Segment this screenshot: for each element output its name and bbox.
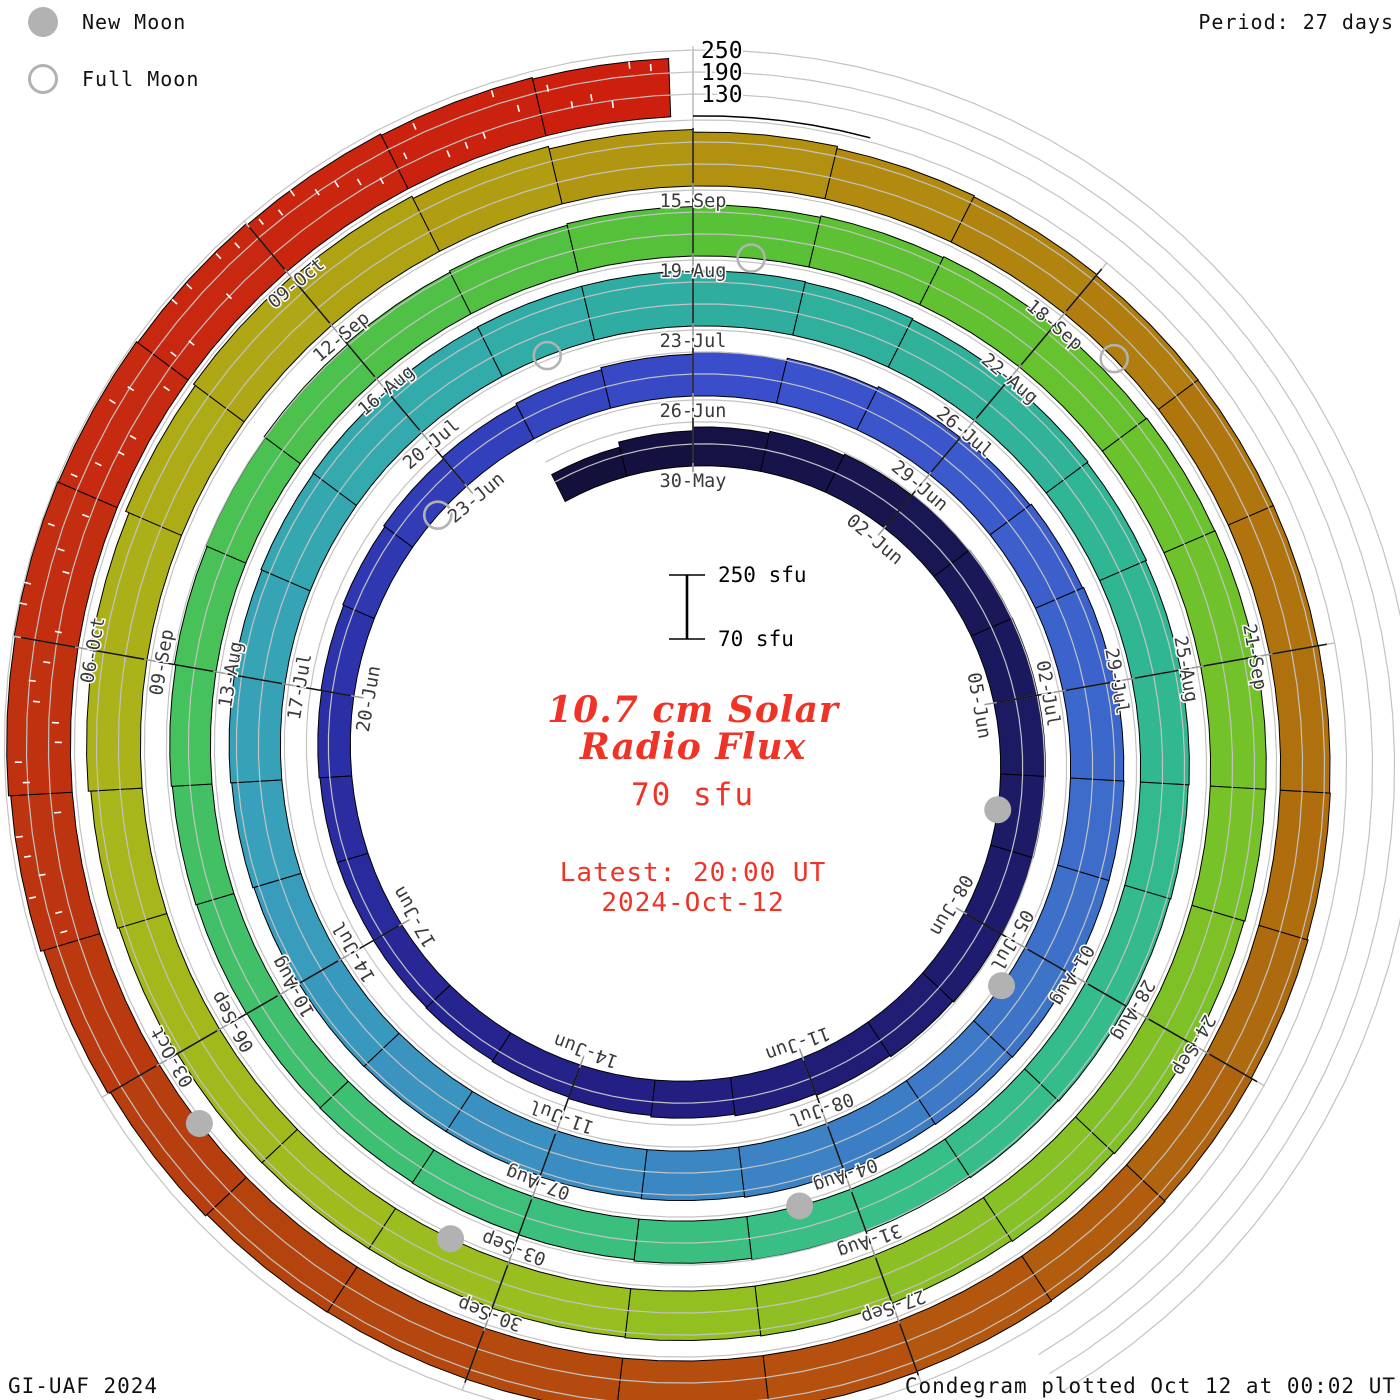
new-moon-icon [28, 7, 58, 37]
legend-item-new-moon: New Moon [28, 6, 199, 38]
center-annotation: 10.7 cm Solar Radio Flux 70 sfu Latest: … [547, 692, 839, 918]
condegram-page: 30-May02-Jun05-Jun08-Jun11-Jun14-Jun17-J… [0, 0, 1400, 1400]
date-tick-label: 30-May [660, 471, 727, 492]
radial-axis-tick: 130 [701, 82, 743, 108]
latest-timestamp: Latest: 20:00 UT 2024-Oct-12 [547, 859, 839, 917]
chart-title: 10.7 cm Solar Radio Flux [547, 692, 839, 765]
new-moon-marker [186, 1110, 213, 1137]
full-moon-icon [28, 64, 58, 94]
date-tick-label: 15-Sep [660, 191, 727, 212]
new-moon-marker [437, 1225, 464, 1252]
latest-line2: 2024-Oct-12 [547, 889, 839, 918]
date-tick-label: 19-Aug [660, 261, 727, 282]
chart-title-line1: 10.7 cm Solar [547, 692, 839, 729]
date-tick-label: 23-Jul [660, 331, 727, 352]
new-moon-marker [988, 972, 1015, 999]
chart-title-line2: Radio Flux [547, 729, 839, 766]
date-tick-label: 26-Jun [660, 401, 727, 422]
latest-line1: Latest: 20:00 UT [547, 859, 839, 888]
full-moon-label: Full Moon [82, 67, 199, 91]
new-moon-marker [984, 796, 1011, 823]
current-flux-value: 70 sfu [547, 777, 839, 813]
credit-text: GI-UAF 2024 [8, 1374, 158, 1398]
moon-legend: New Moon Full Moon [28, 6, 199, 120]
plotted-text: Condegram plotted Oct 12 at 00:02 UT [905, 1374, 1396, 1398]
new-moon-marker [786, 1192, 813, 1219]
legend-item-full-moon: Full Moon [28, 63, 199, 95]
scale-bar-min-label: 70 sfu [718, 627, 794, 651]
period-label: Period: 27 days [1198, 10, 1394, 34]
new-moon-label: New Moon [82, 10, 186, 34]
scale-bar-max-label: 250 sfu [718, 563, 807, 587]
